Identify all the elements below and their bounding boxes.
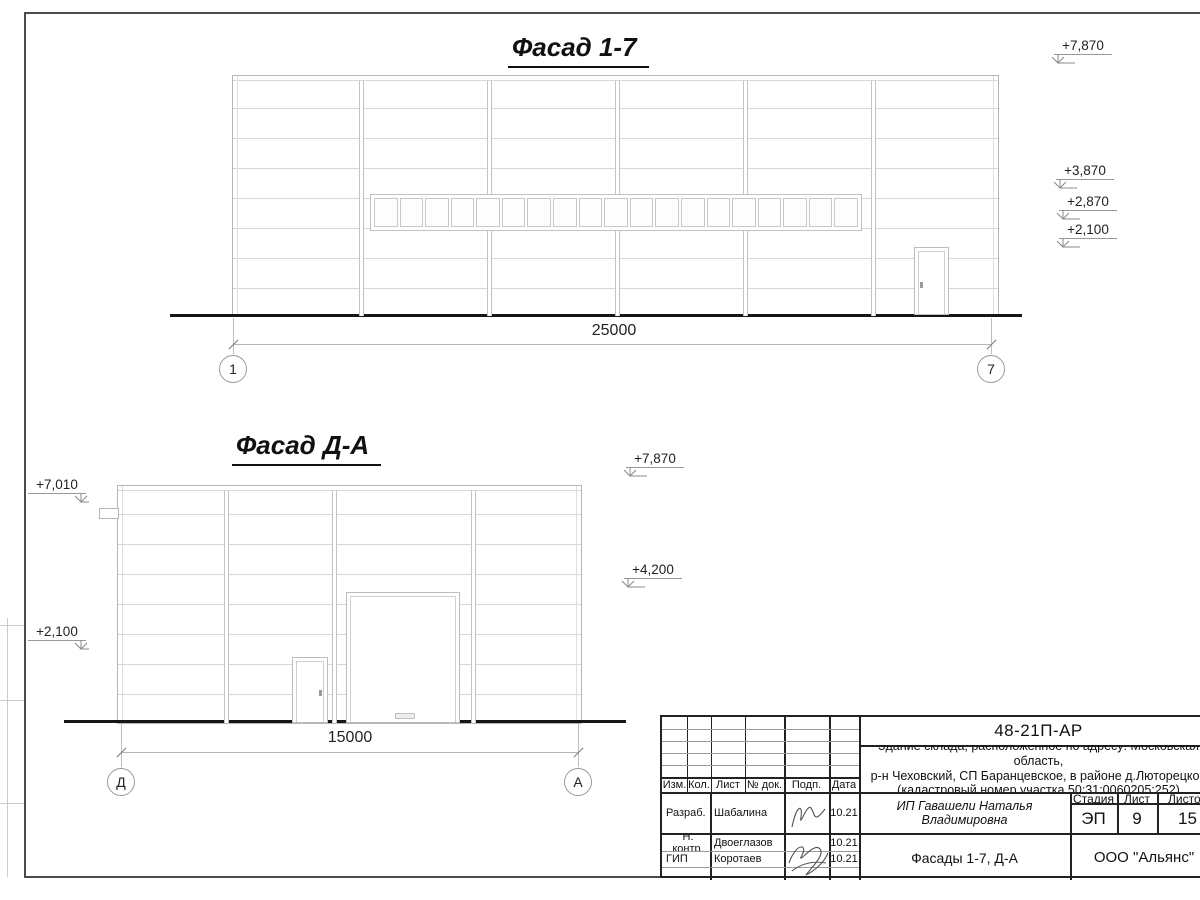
facade2-column [332,491,337,723]
elevation-arrow-icon [1051,54,1077,67]
tb-header-kol: Кол. [687,777,711,792]
window-pane [630,198,654,227]
tb-header-izm: Изм. [662,777,687,792]
facade2-dim-text: 15000 [328,729,373,747]
margin-cell-line [0,700,24,701]
facade1-door [914,247,949,315]
facade2-column [224,491,229,723]
tb-line [662,765,859,766]
tb-name: Шабалина [710,797,784,829]
elevation-mark: +7,010 [28,477,86,494]
facade2-ext-right [578,724,579,767]
facade2-door-handle [319,690,322,696]
tb-address-line3: (кадастровый номер участка 50:31:0060205… [897,783,1180,792]
margin-cell-line [0,625,24,626]
facade1-edge-inner-right [993,76,994,316]
window-pane [527,198,551,227]
facade1-axis-1: 1 [219,355,247,383]
signature [788,799,830,833]
elevation-value: +2,100 [28,624,86,640]
tb-company: ООО "Альянс" [1070,835,1200,880]
facade1-door-handle [920,282,923,288]
elevation-value: +4,200 [624,562,682,578]
tb-sheet-value: 9 [1117,805,1157,833]
tb-line [662,741,859,742]
facade2-gate-plate [395,713,415,719]
tb-address: Здание склада, расположенное по адресу: … [859,745,1200,792]
window-pane [834,198,858,227]
tb-sheets-label: Листов [1157,792,1200,805]
facade1-axis-7: 7 [977,355,1005,383]
window-pane [451,198,475,227]
tb-address-line2: р-н Чеховский, СП Баранцевское, в районе… [871,769,1200,784]
elevation-value: +2,870 [1059,194,1117,210]
window-pane [758,198,782,227]
tb-date: 10.21 [829,835,859,851]
facade2-ext-left [121,724,122,767]
facade2-gate [346,592,460,723]
facade1-ext-right [991,318,992,354]
tb-doc-number: 48-21П-АР [859,717,1200,745]
elevation-arrow-icon [621,578,647,591]
window-pane [400,198,424,227]
tb-date: 10.21 [829,851,859,867]
elevation-value: +7,870 [626,451,684,467]
facade2-column [471,491,476,723]
elevation-mark: +2,870 [1059,194,1117,211]
window-pane [783,198,807,227]
tb-name: Двоеглазов [710,835,784,851]
elevation-value: +7,010 [28,477,86,493]
tb-client: ИП Гавашели Наталья Владимировна [859,792,1070,833]
tb-role: Н. контр. [662,835,710,851]
elevation-arrow-icon [1053,179,1079,192]
facade1-edge-inner-left [237,76,238,316]
margin-cell-line [0,803,24,804]
elevation-value: +3,870 [1056,163,1114,179]
frame-top [24,12,1200,14]
facade1-building [232,75,999,317]
tb-date: 10.21 [829,797,859,829]
facade2-axis-d: Д [107,768,135,796]
tb-sheet-label: Лист [1117,792,1157,805]
facade2-dim-line [121,752,578,753]
window-pane [502,198,526,227]
window-pane [374,198,398,227]
tb-stage-label: Стадия [1070,792,1117,805]
window-pane [681,198,705,227]
elevation-arrow-icon [1056,238,1082,251]
tb-sheets-value: 15 [1157,805,1200,833]
elevation-mark: +7,870 [626,451,684,468]
title-block: Изм. Кол. Лист № док. Подп. Дата Разраб.… [660,715,1200,878]
facade2-ground-line [64,720,626,723]
window-pane [809,198,833,227]
facade1-ext-left [233,318,234,354]
tb-header-list: Лист [711,777,745,792]
window-pane [604,198,628,227]
facade2-axis-a: А [564,768,592,796]
facade2-parapet-line [118,490,581,491]
elevation-value: +2,100 [1059,222,1117,238]
frame-left [24,12,26,878]
window-pane [707,198,731,227]
window-pane [732,198,756,227]
tb-stage-value: ЭП [1070,805,1117,833]
tb-header-podp: Подп. [784,777,829,792]
tb-address-line1: Здание склада, расположенное по адресу: … [859,745,1200,769]
elevation-mark: +2,100 [1059,222,1117,239]
margin-column-line [7,618,8,877]
tb-role: ГИП [662,851,710,867]
facade2-edge-inner-right [576,486,577,723]
facade1-dim-line [233,344,991,345]
facade1-window-band [370,194,862,231]
elevation-mark: +3,870 [1056,163,1114,180]
facade1-title: Фасад 1-7 [508,32,649,68]
elevation-mark: +2,100 [28,624,86,641]
tb-header-ndok: № док. [745,777,784,792]
facade2-door [292,657,328,723]
tb-line [662,729,859,730]
elevation-arrow-icon [623,467,649,480]
facade2-edge-inner-left [122,486,123,723]
window-pane [425,198,449,227]
window-pane [476,198,500,227]
facade2-gutter-outlet [99,508,119,519]
elevation-mark: +4,200 [624,562,682,579]
elevation-value: +7,870 [1054,38,1112,54]
tb-line [662,753,859,754]
facade2-gate-leaf [350,596,456,722]
facade1-ground-line [170,314,1022,317]
facade2-building [117,485,582,724]
window-pane [579,198,603,227]
facade1-dim-text: 25000 [592,322,637,340]
facade1-column [359,81,364,316]
elevation-mark: +7,870 [1054,38,1112,55]
window-pane [553,198,577,227]
elevation-arrow-icon [73,493,89,506]
facade1-column [871,81,876,316]
drawing-sheet: { "drawing": { "facade1": { "title": "Фа… [0,0,1200,900]
tb-sheet-title: Фасады 1-7, Д-А [859,835,1070,880]
tb-header-data: Дата [829,777,859,792]
elevation-arrow-icon [73,640,89,653]
tb-name: Коротаев [710,851,784,867]
window-pane [655,198,679,227]
signature [784,833,832,879]
tb-role: Разраб. [662,797,710,829]
facade2-title: Фасад Д-А [232,430,381,466]
